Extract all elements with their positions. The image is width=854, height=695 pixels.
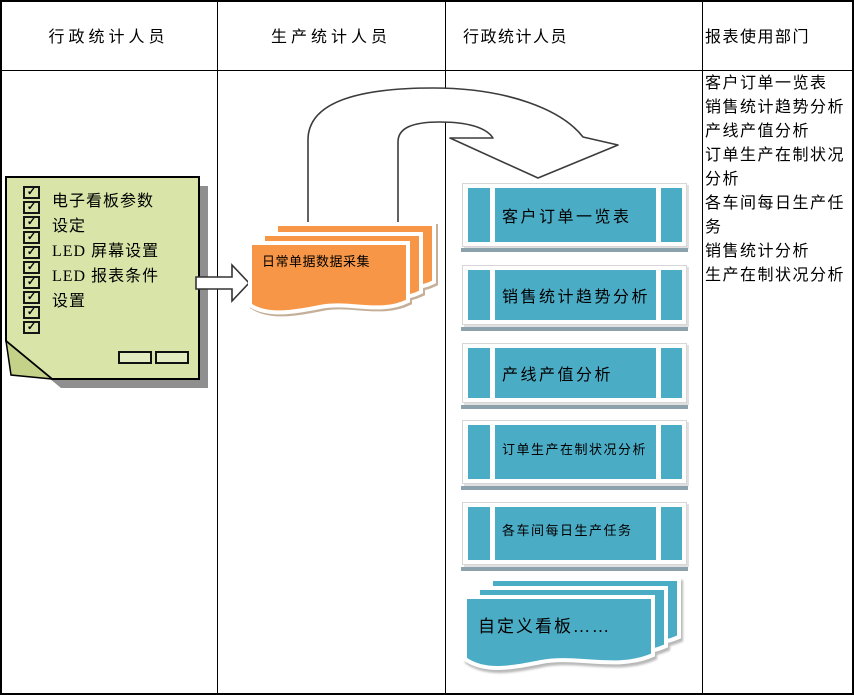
screen-main-panel: 订单生产在制状况分析 xyxy=(495,425,656,479)
daily-data-doc-label: 日常单据数据采集 xyxy=(262,251,370,270)
screen-side-panel xyxy=(661,270,682,320)
checkbox-icon: ✓ xyxy=(23,306,40,319)
checkbox-icon: ✓ xyxy=(23,291,40,304)
screen-shadow-bar xyxy=(461,327,688,331)
report-list-item: 客户订单一览表 xyxy=(705,72,853,96)
note-line: 设置 xyxy=(52,289,202,314)
report-list-item: 产线产值分析 xyxy=(705,120,853,144)
screen-side-panel xyxy=(468,348,490,398)
screen-order-wip: 订单生产在制状况分析 xyxy=(462,420,687,484)
note-line: 设定 xyxy=(52,214,202,239)
screen-side-panel xyxy=(468,270,490,320)
header-divider-line xyxy=(0,70,854,71)
lane-header-label: 生产统计人员 xyxy=(271,23,391,47)
screen-side-panel xyxy=(661,425,682,479)
config-note: ✓ ✓ ✓ ✓ ✓ ✓ ✓ ✓ ✓ ✓ 电子看板参数 设定 LED 屏幕设置 L… xyxy=(4,175,216,399)
checkbox-icon: ✓ xyxy=(23,201,40,214)
checkbox-icon: ✓ xyxy=(23,321,40,334)
report-list-item: 订单生产在制状况分析 xyxy=(705,144,853,192)
screen-side-panel xyxy=(661,348,682,398)
report-list: 客户订单一览表 销售统计趋势分析 产线产值分析 订单生产在制状况分析 各车间每日… xyxy=(705,72,853,288)
screen-side-panel xyxy=(661,188,682,242)
lane-header-label: 报表使用部门 xyxy=(705,23,810,47)
checkbox-icon: ✓ xyxy=(23,246,40,259)
screen-shadow-bar xyxy=(461,248,688,252)
checkbox-icon: ✓ xyxy=(23,216,40,229)
report-list-item: 生产在制状况分析 xyxy=(705,264,853,288)
custom-board-label: 自定义看板…… xyxy=(478,612,611,637)
lane-divider-1 xyxy=(217,0,218,695)
screen-line-output: 产线产值分析 xyxy=(462,343,687,403)
lane-header-production-stats: 生产统计人员 xyxy=(217,0,445,70)
screen-workshop-tasks: 各车间每日生产任务 xyxy=(462,502,687,565)
note-small-rect-icon xyxy=(155,351,189,364)
screen-customer-orders: 客户订单一览表 xyxy=(462,183,687,247)
screen-side-panel xyxy=(468,425,490,479)
report-list-item: 销售统计分析 xyxy=(705,240,853,264)
lane-header-label: 行政统计人员 xyxy=(48,23,168,47)
lane-header-report-users: 报表使用部门 xyxy=(702,0,854,70)
screen-sales-trend: 销售统计趋势分析 xyxy=(462,265,687,325)
report-list-item: 销售统计趋势分析 xyxy=(705,96,853,120)
checkbox-icon: ✓ xyxy=(23,186,40,199)
daily-data-doc xyxy=(240,215,452,330)
screen-label: 产线产值分析 xyxy=(495,361,613,385)
report-list-item: 各车间每日生产任务 xyxy=(705,192,853,240)
checkbox-icon: ✓ xyxy=(23,261,40,274)
screen-main-panel: 产线产值分析 xyxy=(495,348,656,398)
lane-header-admin-stats-2: 行政统计人员 xyxy=(445,0,720,70)
checkbox-icon: ✓ xyxy=(23,231,40,244)
screen-main-panel: 销售统计趋势分析 xyxy=(495,270,656,320)
note-line: LED 报表条件 xyxy=(52,264,202,289)
lane-header-label: 行政统计人员 xyxy=(463,23,568,47)
lane-header-admin-stats-1: 行政统计人员 xyxy=(0,0,217,70)
note-line: LED 屏幕设置 xyxy=(52,239,202,264)
note-small-rect-icon xyxy=(118,351,152,364)
screen-label: 订单生产在制状况分析 xyxy=(495,439,647,466)
screen-main-panel: 客户订单一览表 xyxy=(495,188,656,242)
lane-divider-3 xyxy=(702,0,703,695)
checkbox-icon: ✓ xyxy=(23,276,40,289)
screen-shadow-bar xyxy=(461,486,688,490)
screen-main-panel: 各车间每日生产任务 xyxy=(495,507,656,560)
screen-side-panel xyxy=(661,507,682,560)
note-text: 电子看板参数 设定 LED 屏幕设置 LED 报表条件 设置 xyxy=(52,189,202,314)
swimlane-flow-diagram: 行政统计人员 生产统计人员 行政统计人员 报表使用部门 客户订单一览表 销售统计… xyxy=(0,0,854,695)
screen-label: 客户订单一览表 xyxy=(495,203,632,227)
note-line: 电子看板参数 xyxy=(52,189,202,214)
screen-shadow-bar xyxy=(461,405,688,409)
screen-shadow-bar xyxy=(461,567,688,571)
screen-label: 销售统计趋势分析 xyxy=(495,283,650,307)
screen-label: 各车间每日生产任务 xyxy=(495,520,633,547)
screen-side-panel xyxy=(468,188,490,242)
screen-side-panel xyxy=(468,507,490,560)
